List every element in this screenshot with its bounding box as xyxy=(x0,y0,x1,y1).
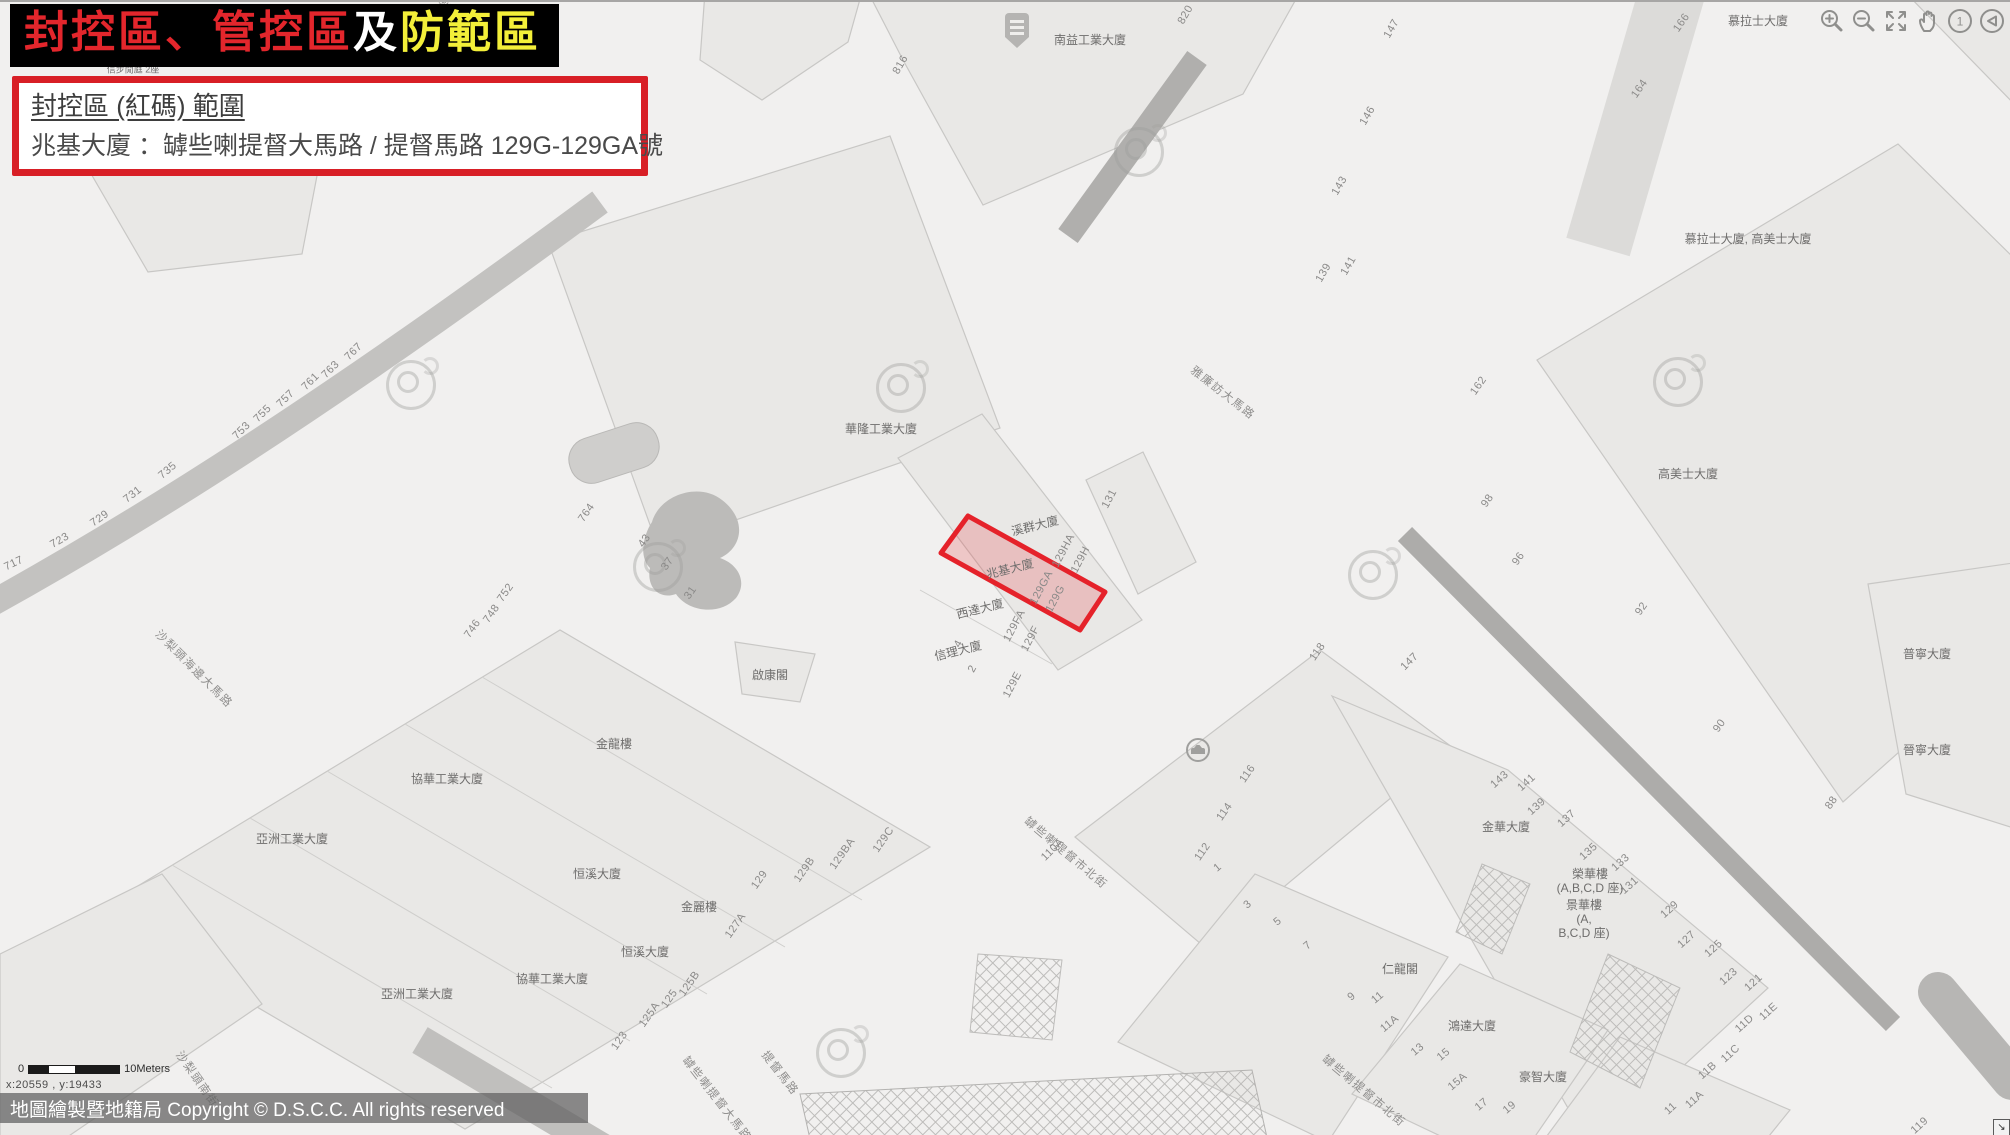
zoom-out-icon[interactable] xyxy=(1850,7,1878,35)
scale-distance-label: 10Meters xyxy=(124,1063,170,1075)
map-toolbar: 1 xyxy=(1818,7,2010,35)
full-extent-icon[interactable] xyxy=(1882,7,1910,35)
scale-zero-label: 0 xyxy=(18,1063,24,1075)
default-extent-icon[interactable]: 1 xyxy=(1946,7,1974,35)
map-watermark-swirl-icon xyxy=(876,363,926,413)
copyright-bar: 地圖繪製暨地籍局 Copyright © D.S.C.C. All rights… xyxy=(0,1093,588,1123)
map-watermark-swirl-icon xyxy=(1653,357,1703,407)
market-building xyxy=(800,1070,1268,1135)
building-block xyxy=(1868,562,2010,830)
carpark-icon xyxy=(1185,737,1211,768)
lockdown-zone-description: 兆基大廈 ：罅些喇提督大馬路 / 提督馬路 129G-129GA號 xyxy=(31,126,629,162)
svg-text:1: 1 xyxy=(1957,15,1964,29)
map-watermark-swirl-icon xyxy=(816,1028,866,1078)
road-strip xyxy=(1938,992,2010,1080)
copyright-text: 地圖繪製暨地籍局 Copyright © D.S.C.C. All rights… xyxy=(0,1095,504,1122)
road-strip xyxy=(1598,2,1678,247)
building-block xyxy=(868,2,1300,205)
lockdown-info-box: 封控區 (紅碼) 範圍 兆基大廈 ：罅些喇提督大馬路 / 提督馬路 129G-1… xyxy=(12,76,648,176)
banner-text-segment: 防範區 xyxy=(400,8,541,57)
hatched-structure xyxy=(970,954,1062,1040)
previous-extent-icon[interactable] xyxy=(1978,7,2006,35)
scale-bar-graphic xyxy=(28,1065,120,1074)
map-application-window: 信步閒庭 2座南益工業大廈慕拉士大廈慕拉士大廈, 高美士大廈高美士大廈華隆工業大… xyxy=(0,0,2010,1135)
map-watermark-swirl-icon xyxy=(1348,550,1398,600)
building-block xyxy=(700,2,862,100)
banner-text-segment: 封控區、管控區 xyxy=(24,8,353,57)
road-strip xyxy=(0,202,600,610)
building-block xyxy=(735,642,815,702)
cursor-coordinates: x:20559 , y:19433 xyxy=(6,1079,102,1091)
zoom-in-icon[interactable] xyxy=(1818,7,1846,35)
pan-icon[interactable] xyxy=(1914,7,1942,35)
alert-banner: 封控區、管控區及防範區 xyxy=(10,4,559,67)
scale-bar: 0 10Meters xyxy=(18,1063,170,1075)
banner-title: 封控區、管控區及防範區 xyxy=(24,8,541,57)
overview-map-toggle-icon[interactable]: ↘ xyxy=(1993,1119,2010,1135)
plaque-icon xyxy=(1002,11,1032,56)
map-watermark-swirl-icon xyxy=(1114,127,1164,177)
lockdown-zone-title: 封控區 (紅碼) 範圍 xyxy=(31,86,629,123)
map-watermark-swirl-icon xyxy=(386,360,436,410)
map-watermark-swirl-icon xyxy=(633,542,683,592)
banner-text-segment: 及 xyxy=(353,8,400,57)
